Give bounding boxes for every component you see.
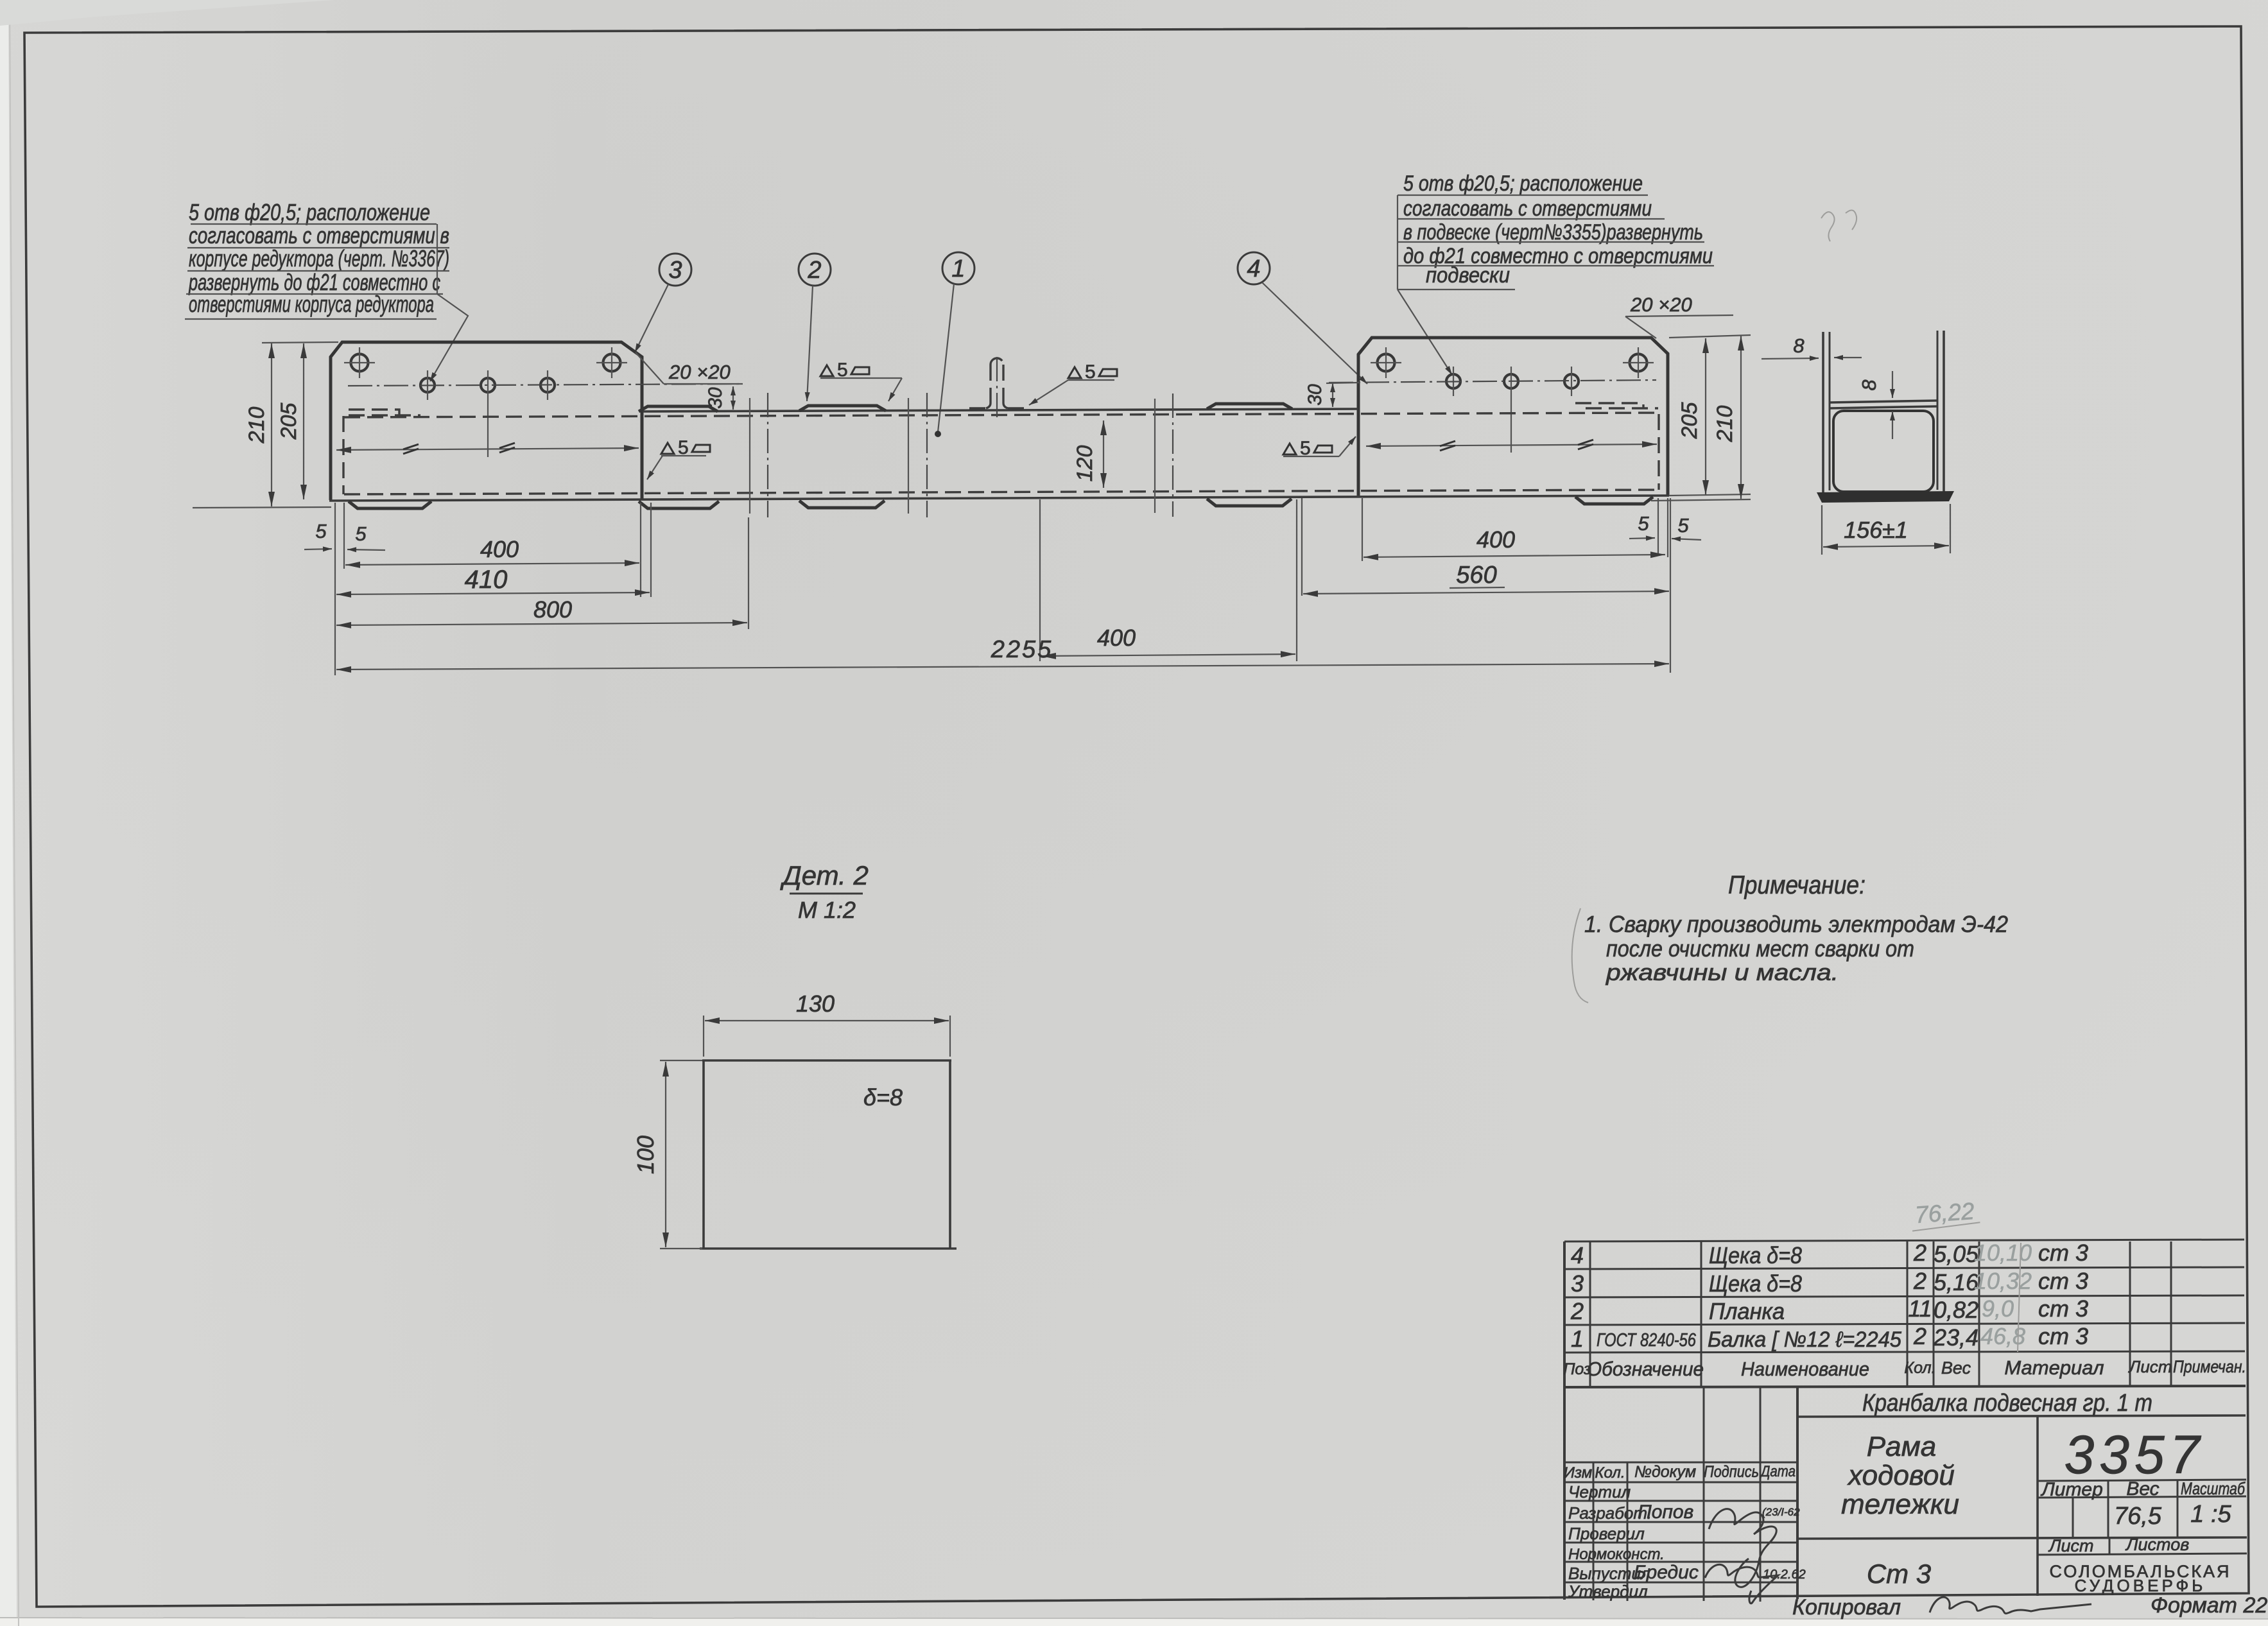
svg-text:5: 5	[355, 523, 367, 545]
svg-text:№докум: №докум	[1634, 1463, 1696, 1481]
svg-text:4: 4	[1571, 1242, 1584, 1268]
svg-text:корпусе редуктора (черт. №3367: корпусе редуктора (черт. №3367)	[189, 245, 449, 272]
svg-text:76,5: 76,5	[2114, 1503, 2162, 1530]
svg-text:СУДОВЕРФЬ: СУДОВЕРФЬ	[2075, 1576, 2206, 1595]
svg-text:3: 3	[668, 257, 682, 284]
svg-text:Планка: Планка	[1709, 1298, 1785, 1324]
svg-text:5 отв ф20,5; расположение: 5 отв ф20,5; расположение	[189, 199, 430, 225]
svg-text:согласовать с отверстиями: согласовать с отверстиями	[1403, 196, 1652, 221]
svg-text:1. Сварку производить электр: 1. Сварку производить электродам Э-42	[1584, 911, 2008, 937]
svg-text:Балка [ №12 ℓ=2245: Балка [ №12 ℓ=2245	[1708, 1328, 1901, 1352]
svg-text:Чертил: Чертил	[1568, 1482, 1631, 1501]
svg-text:Обозначение: Обозначение	[1587, 1358, 1704, 1380]
svg-text:Подпись: Подпись	[1704, 1463, 1759, 1481]
svg-text:Щека δ=8: Щека δ=8	[1709, 1242, 1802, 1268]
svg-text:2: 2	[807, 257, 821, 284]
svg-text:3357: 3357	[2065, 1424, 2205, 1485]
svg-text:Кол.: Кол.	[1595, 1464, 1625, 1482]
svg-text:410: 410	[465, 566, 508, 594]
svg-text:Копировал: Копировал	[1792, 1595, 1901, 1620]
svg-text:ходовой: ходовой	[1847, 1460, 1955, 1491]
svg-text:5 отв ф20,5; расположение: 5 отв ф20,5; расположение	[1403, 171, 1643, 196]
svg-text:400: 400	[480, 536, 519, 562]
svg-text:Изм: Изм	[1564, 1464, 1593, 1482]
svg-text:10,10: 10,10	[1974, 1240, 2032, 1266]
svg-text:560: 560	[1456, 562, 1496, 589]
svg-text:Бредис: Бредис	[1634, 1562, 1699, 1583]
svg-text:Дата: Дата	[1759, 1463, 1796, 1480]
svg-text:Щека δ=8: Щека δ=8	[1709, 1270, 1802, 1297]
svg-text:205: 205	[1677, 402, 1702, 440]
svg-text:Примечан.: Примечан.	[2173, 1357, 2246, 1376]
svg-text:205: 205	[277, 403, 301, 440]
svg-text:1: 1	[951, 255, 965, 282]
svg-text:5: 5	[315, 520, 327, 542]
svg-text:Попов: Попов	[1638, 1501, 1693, 1523]
svg-text:120: 120	[1073, 445, 1097, 482]
svg-text:130: 130	[796, 990, 835, 1017]
svg-text:отверстиями корпуса редуктора: отверстиями корпуса редуктора	[189, 291, 434, 317]
svg-text:ржавчины и масла.: ржавчины и масла.	[1606, 959, 1839, 985]
svg-text:Вес: Вес	[2126, 1478, 2159, 1500]
svg-text:ГОСТ 8240-56: ГОСТ 8240-56	[1597, 1330, 1697, 1351]
svg-text:ст 3: ст 3	[2038, 1295, 2088, 1322]
svg-text:3: 3	[1571, 1270, 1584, 1297]
svg-text:δ=8: δ=8	[863, 1084, 903, 1111]
svg-text:10.2.62: 10.2.62	[1763, 1568, 1806, 1582]
svg-text:Формат 22: Формат 22	[2151, 1593, 2267, 1618]
svg-text:подвески: подвески	[1426, 263, 1510, 288]
svg-text:30: 30	[705, 387, 726, 409]
svg-text:30: 30	[1304, 384, 1326, 406]
svg-text:согласовать с отверстиями в: согласовать с отверстиями в	[189, 222, 449, 248]
svg-text:156±1: 156±1	[1844, 517, 1908, 543]
svg-text:Лист: Лист	[2128, 1357, 2172, 1376]
svg-text:Листов: Листов	[2125, 1535, 2189, 1554]
svg-text:11: 11	[1908, 1295, 1932, 1322]
svg-text:Ст 3: Ст 3	[1867, 1559, 1931, 1589]
svg-text:1: 1	[1571, 1326, 1584, 1352]
svg-text:5: 5	[1677, 514, 1689, 537]
svg-text:10,32: 10,32	[1974, 1268, 2032, 1294]
svg-text:400: 400	[1097, 625, 1136, 651]
svg-text:4: 4	[1247, 255, 1260, 282]
svg-text:Проверил: Проверил	[1568, 1524, 1645, 1543]
svg-text:Примечание:: Примечание:	[1728, 871, 1865, 899]
svg-text:5,05: 5,05	[1934, 1241, 1979, 1267]
svg-text:Наименование: Наименование	[1741, 1358, 1869, 1380]
svg-text:ст 3: ст 3	[2038, 1268, 2088, 1294]
svg-text:Нормоконст.: Нормоконст.	[1568, 1546, 1665, 1563]
svg-text:210: 210	[1713, 406, 1737, 443]
svg-text:20 ×20: 20 ×20	[668, 361, 731, 383]
svg-text:2255: 2255	[991, 636, 1053, 663]
svg-text:Литер: Литер	[2040, 1479, 2103, 1500]
svg-text:2: 2	[1570, 1298, 1584, 1324]
svg-text:20 ×20: 20 ×20	[1630, 293, 1692, 316]
svg-text:Лист: Лист	[2048, 1536, 2094, 1555]
svg-text:8: 8	[1793, 334, 1805, 357]
svg-text:(23/I-62: (23/I-62	[1762, 1506, 1800, 1518]
svg-text:Кранбалка подвесная гр. 1 т: Кранбалка подвесная гр. 1 т	[1862, 1390, 2152, 1417]
svg-text:23,4: 23,4	[1933, 1324, 1978, 1351]
svg-text:Вес: Вес	[1941, 1358, 1971, 1378]
svg-text:100: 100	[632, 1136, 659, 1174]
svg-text:Дет. 2: Дет. 2	[780, 860, 869, 890]
svg-text:5,16: 5,16	[1934, 1269, 1979, 1295]
svg-text:в подвеске (черт№3355)разверну: в подвеске (черт№3355)развернуть	[1403, 220, 1703, 245]
svg-text:210: 210	[245, 407, 269, 444]
svg-text:М 1:2: М 1:2	[798, 897, 856, 923]
svg-text:1 :5: 1 :5	[2190, 1501, 2231, 1528]
svg-text:2: 2	[1913, 1323, 1926, 1349]
svg-text:8: 8	[1858, 379, 1880, 391]
svg-text:тележки: тележки	[1841, 1489, 1959, 1520]
svg-text:Рама: Рама	[1867, 1431, 1936, 1462]
svg-text:после очистки мест сварки: после очистки мест сварки от	[1606, 935, 1914, 962]
svg-text:Материал: Материал	[2004, 1356, 2104, 1379]
svg-text:9,0: 9,0	[1982, 1295, 2014, 1322]
svg-text:2: 2	[1913, 1268, 1926, 1294]
svg-text:Кол.: Кол.	[1904, 1359, 1935, 1377]
svg-text:ст 3: ст 3	[2038, 1323, 2088, 1349]
svg-text:800: 800	[533, 596, 572, 623]
svg-text:5: 5	[1638, 512, 1649, 535]
svg-text:400: 400	[1476, 526, 1515, 553]
svg-text:2: 2	[1913, 1240, 1926, 1266]
svg-text:Масштаб: Масштаб	[2181, 1479, 2246, 1498]
svg-text:Утвердил: Утвердил	[1568, 1582, 1648, 1601]
svg-text:0,82: 0,82	[1934, 1297, 1978, 1323]
svg-text:ст 3: ст 3	[2038, 1240, 2088, 1266]
